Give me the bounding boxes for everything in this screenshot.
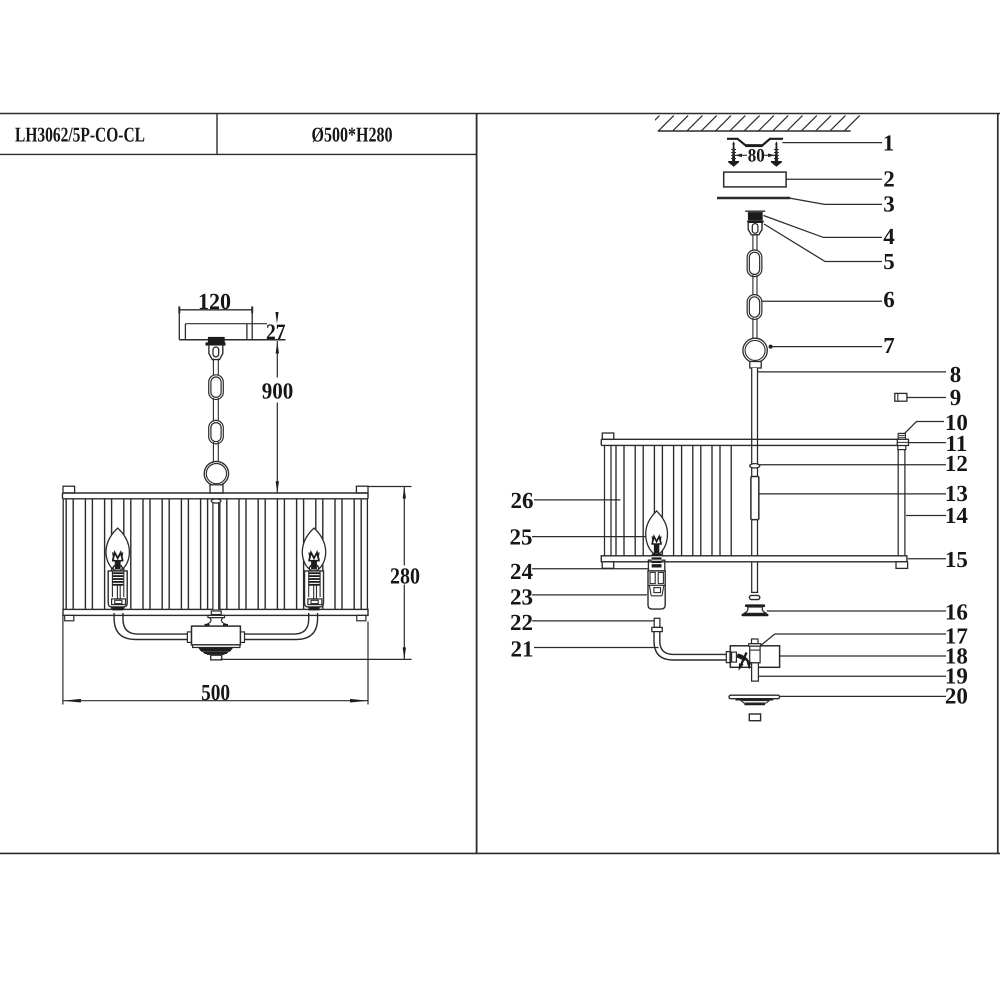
svg-text:80: 80: [748, 145, 765, 166]
svg-text:12: 12: [945, 451, 968, 476]
svg-text:280: 280: [390, 563, 420, 588]
svg-text:2: 2: [883, 167, 895, 192]
svg-text:24: 24: [510, 559, 534, 584]
svg-text:25: 25: [510, 524, 533, 549]
svg-text:21: 21: [511, 637, 534, 662]
svg-text:8: 8: [950, 362, 962, 387]
svg-text:900: 900: [262, 378, 294, 403]
svg-text:22: 22: [510, 610, 533, 635]
svg-text:23: 23: [510, 584, 533, 609]
svg-text:LH3062/5P-CO-CL: LH3062/5P-CO-CL: [15, 123, 145, 147]
svg-text:Ø500*H280: Ø500*H280: [312, 123, 393, 147]
svg-text:15: 15: [945, 547, 968, 572]
svg-text:26: 26: [511, 488, 534, 513]
svg-text:7: 7: [883, 333, 895, 358]
svg-text:3: 3: [883, 192, 895, 217]
svg-text:14: 14: [945, 503, 969, 528]
svg-text:4: 4: [883, 224, 895, 249]
svg-text:5: 5: [883, 249, 895, 274]
svg-text:500: 500: [201, 680, 230, 705]
svg-text:20: 20: [945, 684, 968, 709]
svg-text:1: 1: [883, 131, 895, 156]
svg-text:6: 6: [883, 287, 895, 312]
svg-text:16: 16: [945, 599, 968, 624]
svg-text:9: 9: [950, 385, 962, 410]
svg-text:27: 27: [266, 319, 286, 344]
